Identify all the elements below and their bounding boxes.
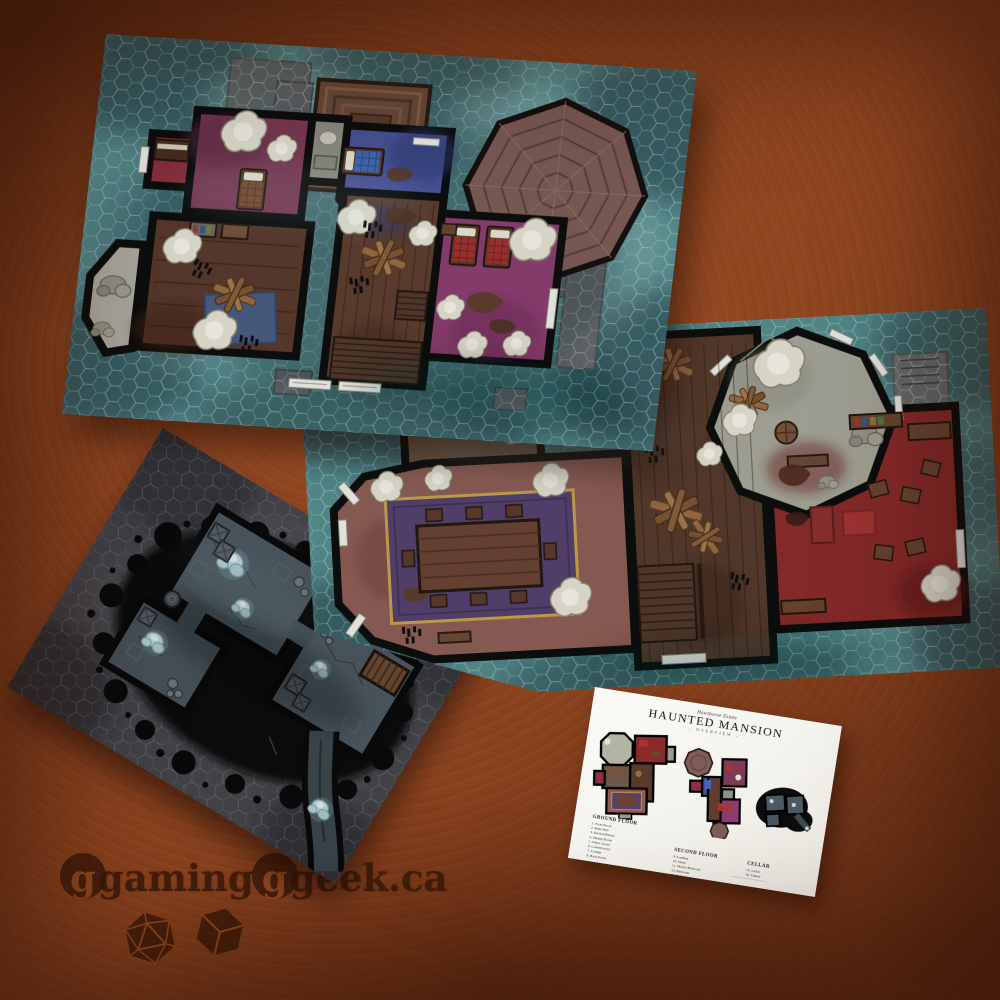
watermark-text: ggamingggeek.ca (68, 856, 428, 900)
second-floor-map-art (62, 34, 697, 451)
product-photo-scene: Hawthorne Estate HAUNTED MANSION OVERVIE… (0, 0, 1000, 1000)
d6-icon (194, 904, 246, 960)
legend-list: 9. Landing 10. Study 11. Master Bedroom … (669, 854, 717, 888)
watermark-g-disc: g (68, 856, 98, 900)
gaminggeek-watermark: ggamingggeek.ca (68, 856, 428, 966)
legend-list: 1. Front Porch 2. Main Hall 3. Kitchen/P… (586, 821, 636, 865)
legend-ground-floor: GROUND FLOOR 1. Front Porch 2. Main Hall… (586, 814, 638, 864)
watermark-tld: .ca (388, 856, 447, 900)
watermark-g-disc: g (260, 856, 290, 900)
poster-second-floor-map (62, 34, 697, 451)
watermark-gaming: gaming (98, 856, 254, 900)
overview-reference-card: Hawthorne Estate HAUNTED MANSION OVERVIE… (568, 687, 842, 897)
minimap-cellar (750, 779, 823, 843)
watermark-dice (116, 904, 266, 970)
d20-icon (123, 908, 178, 968)
minimap-ground-floor (585, 721, 684, 826)
minimap-second-floor (671, 742, 759, 843)
legend-second-floor: SECOND FLOOR 9. Landing 10. Study 11. Ma… (669, 847, 718, 888)
